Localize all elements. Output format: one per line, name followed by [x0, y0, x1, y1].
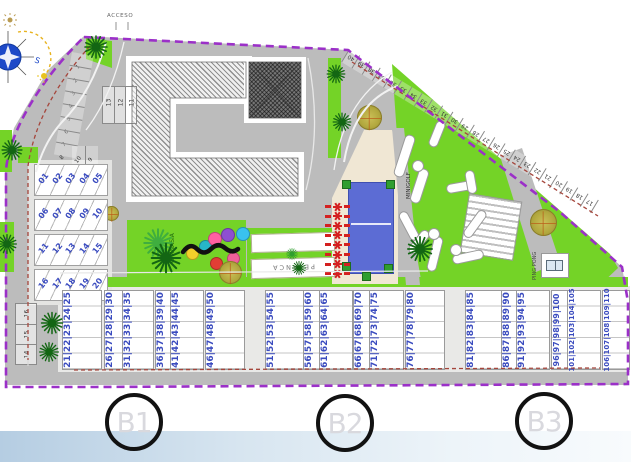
section-marker-b3: B3: [515, 392, 573, 450]
housing-block-label: 36|37|38|39|40: [157, 292, 166, 368]
umbrella-icon: [333, 263, 342, 265]
parking-stall-number: 38: [368, 66, 377, 75]
parking-stall-number: 13: [105, 99, 112, 107]
housing-block-41-45: 41|42|43|44|45: [170, 290, 204, 370]
parking-stall: 13: [103, 87, 114, 123]
green-left-patch-3: [0, 222, 14, 272]
lounger-left: [325, 205, 331, 208]
housing-unit-number: 19: [77, 276, 91, 290]
parking-stall-number: 19: [565, 185, 574, 194]
pool-bush: [386, 180, 395, 189]
parking-stall-number: 32: [430, 103, 439, 112]
housing-unit-number: 13: [64, 241, 78, 255]
playground-equipment-circle: [221, 228, 235, 242]
minigolf-lane-end: [450, 244, 462, 256]
parking-stall-number: 12: [117, 99, 124, 107]
housing-unit-number: 11: [37, 241, 51, 255]
compass-circle: [0, 44, 21, 70]
round-tree: [357, 105, 382, 130]
housing-unit-number: 01: [37, 171, 51, 185]
lounger-umbrella-row: [325, 243, 350, 246]
playground-equipment-circle: [186, 247, 199, 260]
housing-block-label: 21|22|23|24|25: [64, 292, 73, 368]
parking-stall-number: 21: [544, 172, 553, 181]
housing-block-label: 91|92|93|94|95: [518, 292, 527, 368]
compass-arc: [18, 31, 51, 80]
housing-block-label: 46|47|48|49|50: [207, 292, 216, 368]
ping-pong-area: [541, 253, 569, 278]
lounger-left: [325, 253, 331, 256]
housing-block-label: 31|32|33|34|35: [124, 292, 133, 368]
housing-block-label: 56|57|58|59|60: [305, 292, 314, 368]
parking-stall-number: 24: [513, 154, 522, 163]
parking-stall: 15: [16, 324, 36, 344]
compass-star: [0, 45, 20, 69]
compass-spokes: [0, 31, 34, 83]
housing-block-label: 71|72|73|74|75: [371, 292, 380, 368]
parking-stall-number: 26: [492, 141, 501, 150]
parking-row-stalls: 131211: [102, 86, 137, 124]
parking-stall-number: 34: [409, 91, 418, 100]
housing-unit-number: 10: [91, 206, 105, 220]
minigolf-lane-end: [428, 228, 440, 240]
lounger-umbrella-row: [325, 272, 350, 275]
parking-stall-number: 17: [585, 198, 594, 207]
umbrella-icon: [333, 234, 342, 236]
housing-block-label: 66|67|68|69|70: [355, 292, 364, 368]
lounger-right: [344, 224, 350, 227]
pool-bush: [342, 180, 351, 189]
housing-block-26-30: 26|27|28|29|30: [104, 290, 124, 370]
housing-unit-number: 14: [77, 241, 91, 255]
housing-block-76-80: 76|77|78|79|80: [405, 290, 445, 370]
building-square-roof: [249, 62, 301, 118]
lounger-left: [325, 243, 331, 246]
pool-lane-line: [351, 223, 391, 225]
housing-unit-number: 09: [77, 206, 91, 220]
round-tree: [530, 209, 557, 236]
umbrella-icon: [333, 254, 342, 256]
ping-pong-label: PING PONG: [532, 250, 538, 280]
parking-stall-number: 15: [23, 331, 30, 339]
lounger-right: [344, 253, 350, 256]
parking-stall-number: 22: [534, 166, 543, 175]
housing-block-106-110: 106|107|108|109|110: [602, 290, 630, 370]
housing-block-label: 51|52|53|54|55: [267, 292, 276, 368]
playground-label: GIMNASIA: [169, 223, 176, 263]
parking-stall-number: 9: [87, 157, 94, 163]
housing-unit-number: 18: [64, 276, 78, 290]
lounger-right: [344, 263, 350, 266]
section-marker-b1: B1: [105, 393, 163, 451]
petanca-court-1: [251, 232, 335, 253]
parking-stall-number: 23: [523, 160, 532, 169]
lounger-umbrella-row: [325, 215, 350, 218]
housing-unit-number: 05: [91, 171, 105, 185]
green-left-patch-2: [0, 130, 12, 172]
compass-south-label: S: [33, 56, 41, 66]
playground-equipment-circle: [208, 232, 222, 246]
lounger-left: [325, 234, 331, 237]
lounger-umbrella-row: [325, 224, 350, 227]
parking-stall-number: 27: [482, 135, 491, 144]
parking-stall-number: 30: [451, 116, 460, 125]
lounger-right: [344, 215, 350, 218]
parking-left-stalls: 161514: [15, 303, 37, 365]
housing-block-91-95: 91|92|93|94|95: [516, 290, 550, 370]
housing-unit-number: 20: [91, 276, 105, 290]
housing-unit-number: 17: [50, 276, 64, 290]
lounger-left: [325, 215, 331, 218]
section-marker-b2: B2: [316, 394, 374, 452]
entrance-arrows: [116, 22, 128, 30]
ping-pong-table: [546, 260, 563, 271]
lounger-umbrella-row: [325, 205, 350, 208]
umbrella-icon: [333, 244, 342, 246]
housing-block-51-55: 51|52|53|54|55: [265, 290, 305, 370]
parking-stall: 10: [72, 146, 85, 166]
housing-block-label: 96|97|98|99|100: [553, 294, 561, 367]
housing-block-label: 41|42|43|44|45: [172, 292, 181, 368]
green-road-verge: [328, 58, 341, 158]
entrance-label: ACCESO: [107, 13, 133, 19]
umbrella-icon: [333, 225, 342, 227]
parking-stall: 11: [125, 87, 136, 123]
swimming-pool: [348, 182, 394, 274]
parking-stall-number: 36: [388, 78, 397, 87]
playground-equipment-circle: [236, 227, 250, 241]
housing-block-71-75: 71|72|73|74|75: [369, 290, 404, 370]
lounger-right: [344, 205, 350, 208]
parking-stall-number: 25: [502, 147, 511, 156]
housing-block-label: 76|77|78|79|80: [407, 292, 416, 368]
parking-stall-number: 39: [357, 59, 366, 68]
housing-block-label: 106|107|108|109|110: [604, 288, 611, 371]
housing-row-11-15: 1112131415: [34, 234, 108, 266]
parking-stall-number: 28: [471, 128, 480, 137]
parking-stall-number: 11: [128, 99, 135, 107]
lounger-right: [344, 272, 350, 275]
housing-unit-number: 12: [50, 241, 64, 255]
housing-block-81-85: 81|82|83|84|85: [465, 290, 503, 370]
umbrella-icon: [333, 273, 342, 275]
pool-bush: [362, 272, 371, 281]
housing-block-46-50: 46|47|48|49|50: [205, 290, 245, 370]
pool-bush: [384, 264, 393, 273]
parking-stall-number: 33: [420, 97, 429, 106]
lounger-left: [325, 263, 331, 266]
housing-unit-number: 15: [91, 241, 105, 255]
lounger-left: [325, 224, 331, 227]
housing-block-label: 81|82|83|84|85: [467, 292, 476, 368]
lounger-left: [325, 272, 331, 275]
lounger-umbrella-row: [325, 234, 350, 237]
housing-unit-number: 07: [50, 206, 64, 220]
housing-block-label: 61|62|63|64|65: [321, 292, 330, 368]
parking-stall: 12: [114, 87, 125, 123]
housing-block-21-25: 21|22|23|24|25: [62, 290, 102, 370]
compass-sun-top: [3, 13, 17, 27]
left-housing-block: 0102030405060708091011121314151617181920: [34, 164, 108, 304]
lounger-umbrella-row: [325, 253, 350, 256]
petanca-label: PETANCA: [252, 258, 334, 276]
parking-stall-number: 35: [399, 85, 408, 94]
housing-row-06-10: 0607080910: [34, 199, 108, 231]
housing-unit-number: 08: [64, 206, 78, 220]
housing-block-31-35: 31|32|33|34|35: [122, 290, 154, 370]
housing-unit-number: 04: [77, 171, 91, 185]
housing-row-01-05: 0102030405: [34, 164, 108, 196]
lounger-umbrella-row: [325, 263, 350, 266]
parking-stall: 16: [16, 304, 36, 324]
umbrella-icon: [333, 215, 342, 217]
minigolf-lane-end: [412, 160, 424, 172]
housing-block-label: 86|87|88|89|90: [503, 292, 512, 368]
umbrella-icon: [333, 206, 342, 208]
site-plan-canvas: PETANCA PING PONG MINIGOLF GIMNASIA ACCE…: [0, 0, 631, 464]
housing-block-101-105: 101|102|103|104|105: [567, 290, 601, 370]
housing-block-label: 26|27|28|29|30: [106, 292, 115, 368]
parking-stall-number: 20: [554, 179, 563, 188]
petanca-court-2: PETANCA: [251, 257, 335, 279]
parking-pair-stalls: 109: [72, 146, 98, 166]
compass-rose: S: [0, 13, 51, 83]
parking-stall: 9: [85, 146, 98, 166]
housing-unit-number: 06: [37, 206, 51, 220]
housing-unit-number: 16: [37, 276, 51, 290]
parking-stall-number: 14: [23, 351, 30, 359]
parking-stall-number: 31: [440, 110, 449, 119]
housing-unit-number: 02: [50, 171, 64, 185]
parking-stall: 14: [16, 344, 36, 364]
housing-unit-number: 03: [64, 171, 78, 185]
parking-stall-number: 40: [347, 53, 356, 62]
parking-stall-number: 16: [23, 310, 30, 318]
green-left-patch-1: [18, 147, 38, 163]
parking-stall-number: 29: [461, 122, 470, 131]
lounger-right: [344, 234, 350, 237]
round-tree: [219, 261, 242, 284]
housing-block-label: 101|102|103|104|105: [569, 288, 576, 371]
parking-stall-number: 18: [575, 191, 584, 200]
lounger-right: [344, 243, 350, 246]
housing-block-61-65: 61|62|63|64|65: [319, 290, 353, 370]
parking-stall-number: 37: [378, 72, 387, 81]
